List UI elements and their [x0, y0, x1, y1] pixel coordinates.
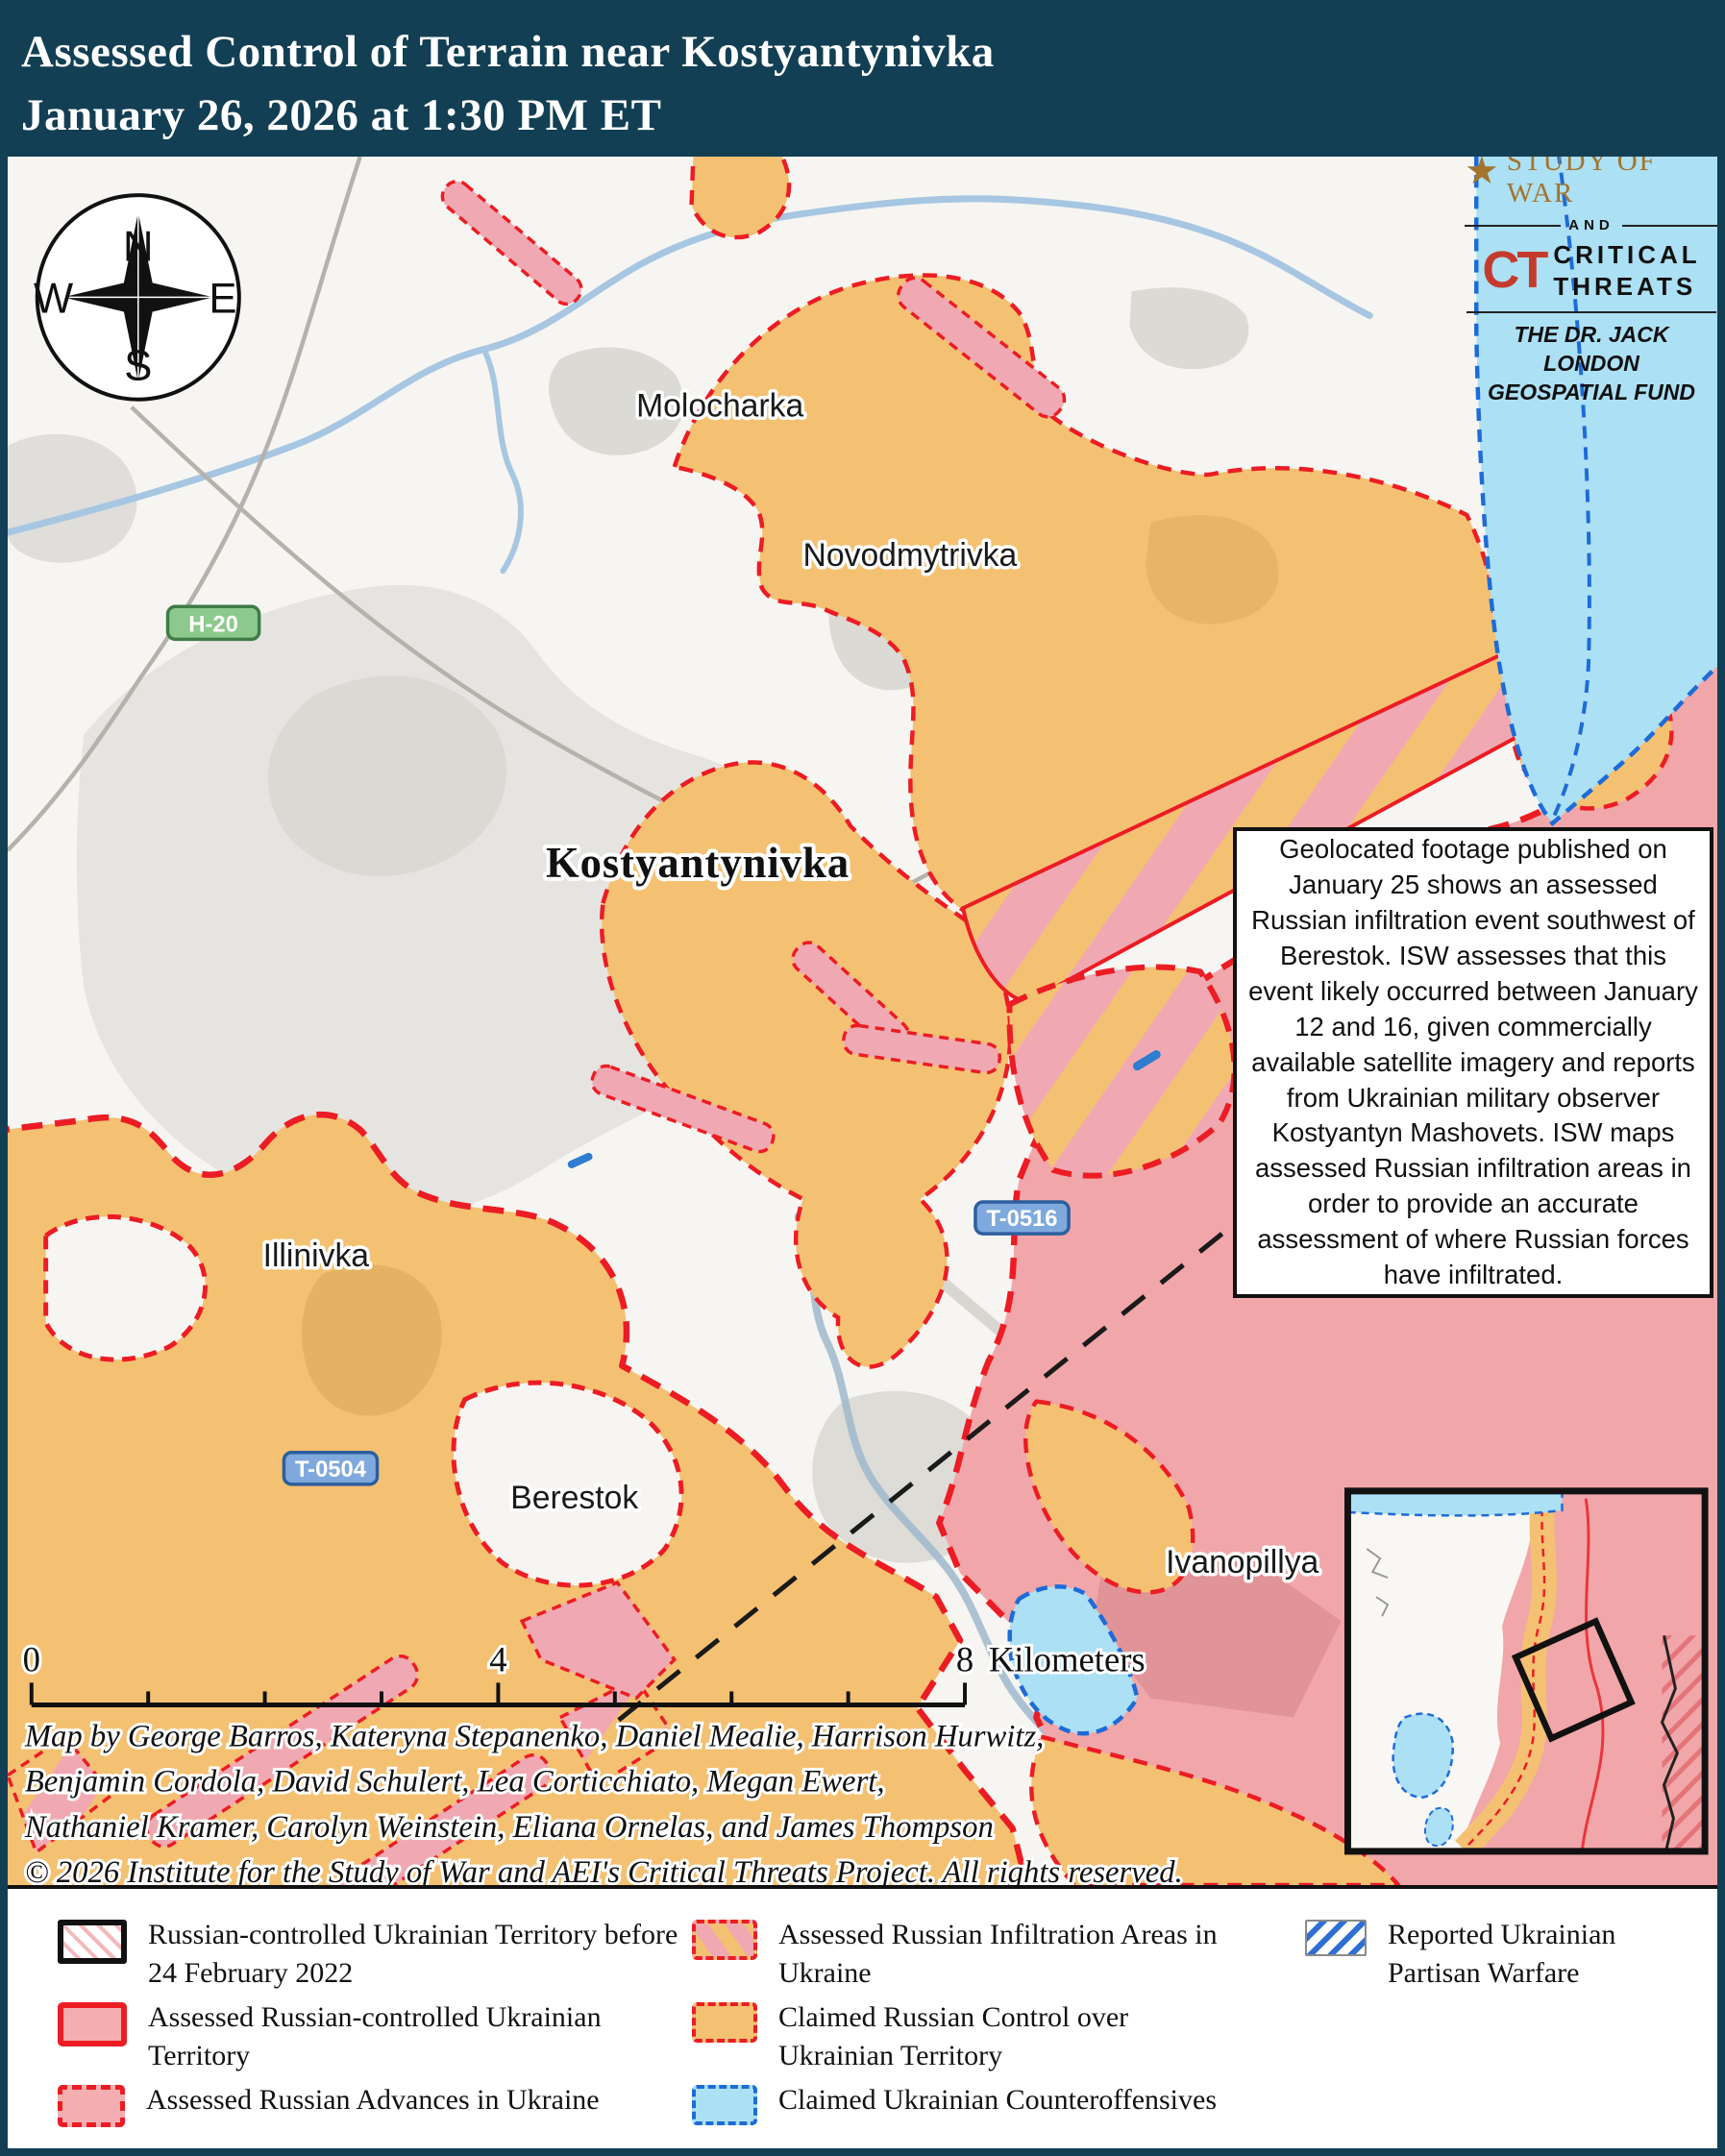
swatch-claimed-control: [692, 2002, 757, 2043]
label-illinivka: Illinivka: [263, 1237, 370, 1274]
label-berestok: Berestok: [510, 1480, 638, 1516]
legend-item-claimed-control: Claimed Russian Control over Ukrainian T…: [692, 2002, 1220, 2075]
inset-pre2022-hatch: [1663, 1635, 1706, 1851]
legend-item-counteroffensives: Claimed Ukrainian Counteroffensives: [692, 2085, 1220, 2125]
legend-label: Claimed Ukrainian Counteroffensives: [778, 2081, 1220, 2125]
swatch-pre2022: [58, 1920, 127, 1964]
swatch-counteroffensives: [692, 2085, 757, 2125]
ct-logo-mark: CT: [1482, 247, 1545, 294]
legend-label: Russian-controlled Ukrainian Territory b…: [148, 1916, 686, 1993]
annotation-box: Geolocated footage published on January …: [1233, 827, 1713, 1298]
legend-item-advances: Assessed Russian Advances in Ukraine: [58, 2085, 646, 2127]
label-kostyantynivka: Kostyantynivka: [546, 839, 850, 887]
swatch-advances: [58, 2085, 125, 2127]
inset-counteroffensive-strip: [1347, 1491, 1562, 1516]
swatch-partisan: [1305, 1920, 1367, 1956]
svg-text:H-20: H-20: [188, 611, 238, 637]
compass-s: S: [124, 342, 152, 389]
ct-critical-text: CRITICAL: [1553, 239, 1700, 271]
attribution-line2: Benjamin Cordola, David Schulert, Lea Co…: [25, 1765, 885, 1800]
legend-item-pre2022: Russian-controlled Ukrainian Territory b…: [58, 1920, 686, 1993]
attribution-line4: © 2026 Institute for the Study of War an…: [25, 1855, 1183, 1885]
ct-threats-text: THREATS: [1553, 271, 1700, 303]
legend: Russian-controlled Ukrainian Territory b…: [8, 1885, 1717, 2156]
map-title: Assessed Control of Terrain near Kostyan…: [21, 21, 1717, 85]
badge-t0516: T-0516: [975, 1202, 1069, 1234]
fund-line2: GEOSPATIAL FUND: [1465, 379, 1718, 407]
legend-item-assessed-control: Assessed Russian-controlled Ukrainian Te…: [58, 2002, 648, 2075]
legend-label: Assessed Russian Advances in Ukraine: [146, 2081, 646, 2127]
scale-0: 0: [23, 1639, 40, 1678]
inset-counteroffensive-blob: [1393, 1714, 1453, 1798]
attribution-line1: Map by George Barros, Kateryna Stepanenk…: [24, 1719, 1045, 1753]
badge-t0504: T-0504: [283, 1453, 377, 1484]
scale-4: 4: [489, 1639, 506, 1678]
logo-and-divider: AND: [1465, 217, 1718, 233]
legend-label: Assessed Russian Infiltration Areas in U…: [778, 1916, 1220, 1993]
attribution-line3: Nathaniel Kramer, Carolyn Weinstein, Eli…: [24, 1810, 994, 1845]
swatch-infiltration: [692, 1920, 757, 1960]
annotation-text: Geolocated footage published on January …: [1246, 832, 1700, 1294]
compass-n: N: [123, 223, 154, 270]
scale-8: 8: [956, 1639, 973, 1678]
compass-w: W: [34, 275, 74, 322]
svg-text:T-0504: T-0504: [295, 1457, 367, 1482]
scale-unit: Kilometers: [989, 1639, 1146, 1678]
svg-text:T-0516: T-0516: [987, 1206, 1058, 1232]
isw-map-page: N S W E Molocharka Novodmytrivka Kostyan…: [0, 0, 1725, 2156]
compass-e: E: [209, 275, 236, 322]
legend-item-partisan: Reported Ukrainian Partisan Warfare: [1305, 1920, 1705, 1993]
logo-divider-line: [1466, 311, 1716, 313]
legend-label: Reported Ukrainian Partisan Warfare: [1388, 1916, 1705, 1993]
legend-item-infiltration: Assessed Russian Infiltration Areas in U…: [692, 1920, 1220, 1993]
legend-label: Claimed Russian Control over Ukrainian T…: [778, 1998, 1220, 2075]
swatch-assessed-control: [58, 2002, 127, 2046]
label-molocharka: Molocharka: [636, 388, 803, 425]
fund-line1: THE DR. JACK LONDON: [1465, 321, 1718, 379]
label-novodmytrivka: Novodmytrivka: [803, 537, 1018, 574]
legend-label: Assessed Russian-controlled Ukrainian Te…: [148, 1998, 648, 2075]
inset-map: [1347, 1491, 1705, 1851]
map-subtitle-date: January 26, 2026 at 1:30 PM ET: [21, 85, 1717, 148]
compass-rose: N S W E: [34, 195, 239, 400]
isw-star-icon: ★: [1465, 152, 1499, 190]
title-bar: Assessed Control of Terrain near Kostyan…: [8, 8, 1717, 157]
badge-h20: H-20: [168, 606, 259, 639]
label-ivanopillya: Ivanopillya: [1166, 1544, 1318, 1580]
